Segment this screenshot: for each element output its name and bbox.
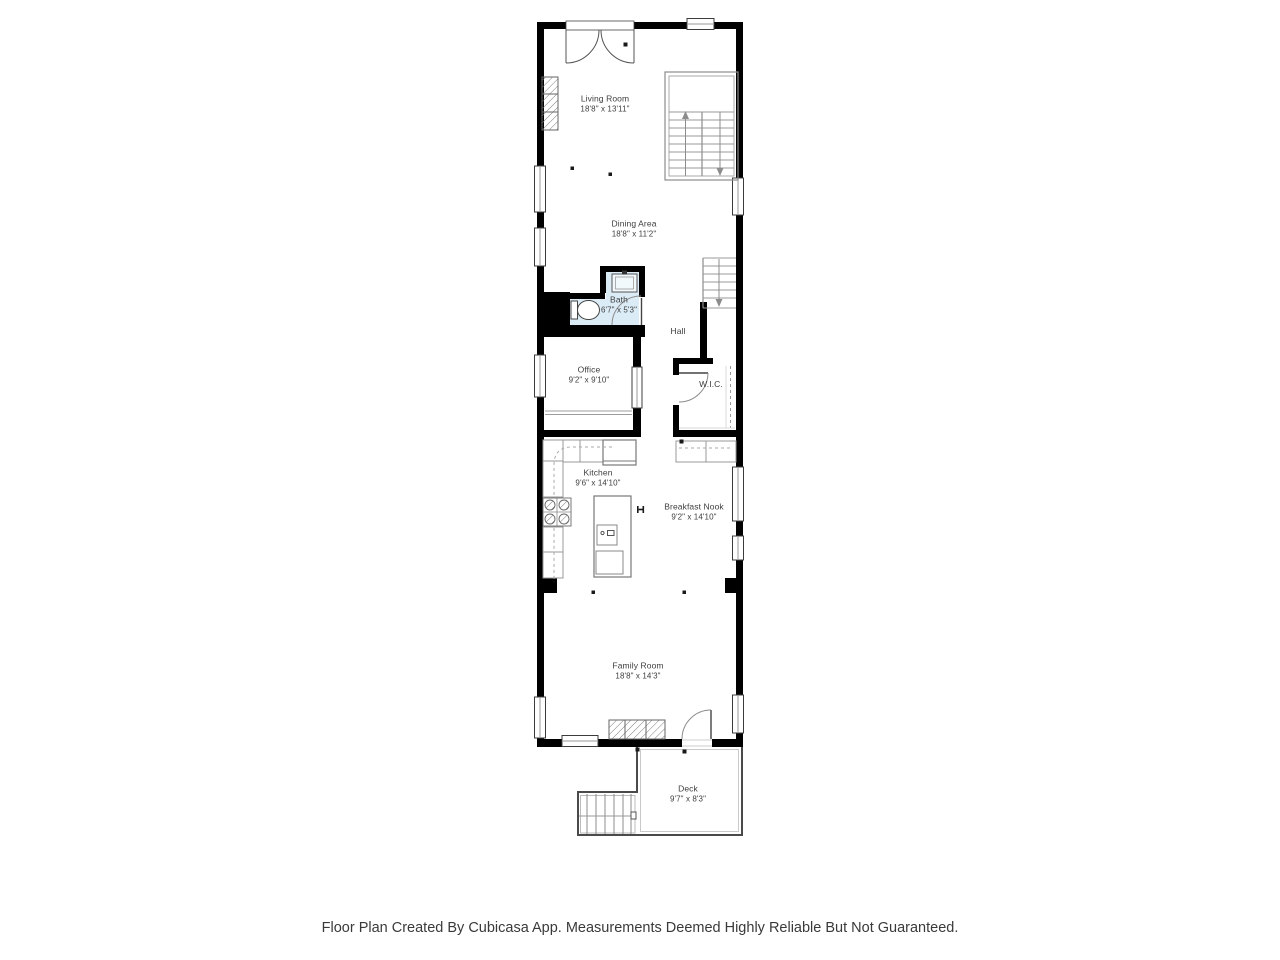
room-dims: 9'6" x 14'10" [575, 478, 620, 489]
window-icon [733, 178, 744, 215]
stove-cooktop-icon [543, 498, 571, 526]
room-dims: 18'8" x 14'3" [612, 671, 663, 682]
window-icon [535, 228, 546, 266]
room-name: Kitchen [575, 468, 620, 479]
room-dims: 6'7" x 5'3" [601, 305, 637, 316]
deck-door [682, 710, 712, 746]
kitchen-island [594, 496, 631, 577]
fireplace-family [609, 720, 665, 739]
office-sill-line [545, 411, 632, 415]
footer-disclaimer: Floor Plan Created By Cubicasa App. Meas… [0, 919, 1280, 937]
deck-stairs [579, 794, 636, 834]
room-dims: 9'2" x 14'10" [664, 512, 724, 523]
french-entry-door [566, 21, 634, 63]
room-name: Bath [601, 295, 637, 306]
room-name: W.I.C. [699, 379, 723, 390]
room-name: Deck [670, 784, 706, 795]
window-icon [733, 695, 744, 733]
room-label-hall: Hall [670, 326, 685, 337]
room-name: Office [569, 365, 610, 376]
window-icon [632, 367, 642, 408]
room-label-dining-area: Dining Area 18'8" x 11'2" [611, 219, 656, 240]
window-icon [535, 166, 546, 212]
refrigerator-icon [603, 440, 636, 465]
window-icon [562, 736, 598, 747]
window-icon [733, 536, 744, 560]
room-label-living-room: Living Room 18'8" x 13'11" [580, 94, 629, 115]
dishwasher-icon [596, 551, 623, 574]
room-label-office: Office 9'2" x 9'10" [569, 365, 610, 386]
room-label-wic: W.I.C. [699, 379, 723, 390]
deck-outline [578, 747, 742, 835]
window-icon [535, 697, 546, 738]
fireplace-living [542, 77, 558, 130]
room-label-breakfast-nook: Breakfast Nook 9'2" x 14'10" [664, 502, 724, 523]
main-staircase [665, 72, 738, 180]
island-marker [637, 506, 644, 513]
bath-sink-icon [612, 271, 637, 293]
room-dims: 9'7" x 8'3" [670, 794, 706, 805]
room-name: Family Room [612, 661, 663, 672]
toilet-icon [571, 301, 600, 320]
room-label-bath: Bath 6'7" x 5'3" [601, 295, 637, 316]
hall-staircase [703, 258, 736, 308]
breakfast-cabinets [676, 441, 736, 462]
room-dims: 18'8" x 13'11" [580, 104, 629, 115]
room-label-deck: Deck 9'7" x 8'3" [670, 784, 706, 805]
room-dims: 9'2" x 9'10" [569, 375, 610, 386]
island-sink-icon [597, 525, 617, 545]
floor-plan-drawing [0, 0, 1280, 960]
room-label-kitchen: Kitchen 9'6" x 14'10" [575, 468, 620, 489]
window-icon [535, 355, 546, 397]
room-name: Dining Area [611, 219, 656, 230]
room-name: Breakfast Nook [664, 502, 724, 513]
wic-closet-rod [679, 366, 735, 428]
floor-plan-page: Living Room 18'8" x 13'11" Dining Area 1… [0, 0, 1280, 960]
window-icon [733, 467, 744, 521]
window-icon [687, 19, 714, 30]
room-label-family-room: Family Room 18'8" x 14'3" [612, 661, 663, 682]
room-name: Hall [670, 326, 685, 337]
room-name: Living Room [580, 94, 629, 105]
room-dims: 18'8" x 11'2" [611, 229, 656, 240]
